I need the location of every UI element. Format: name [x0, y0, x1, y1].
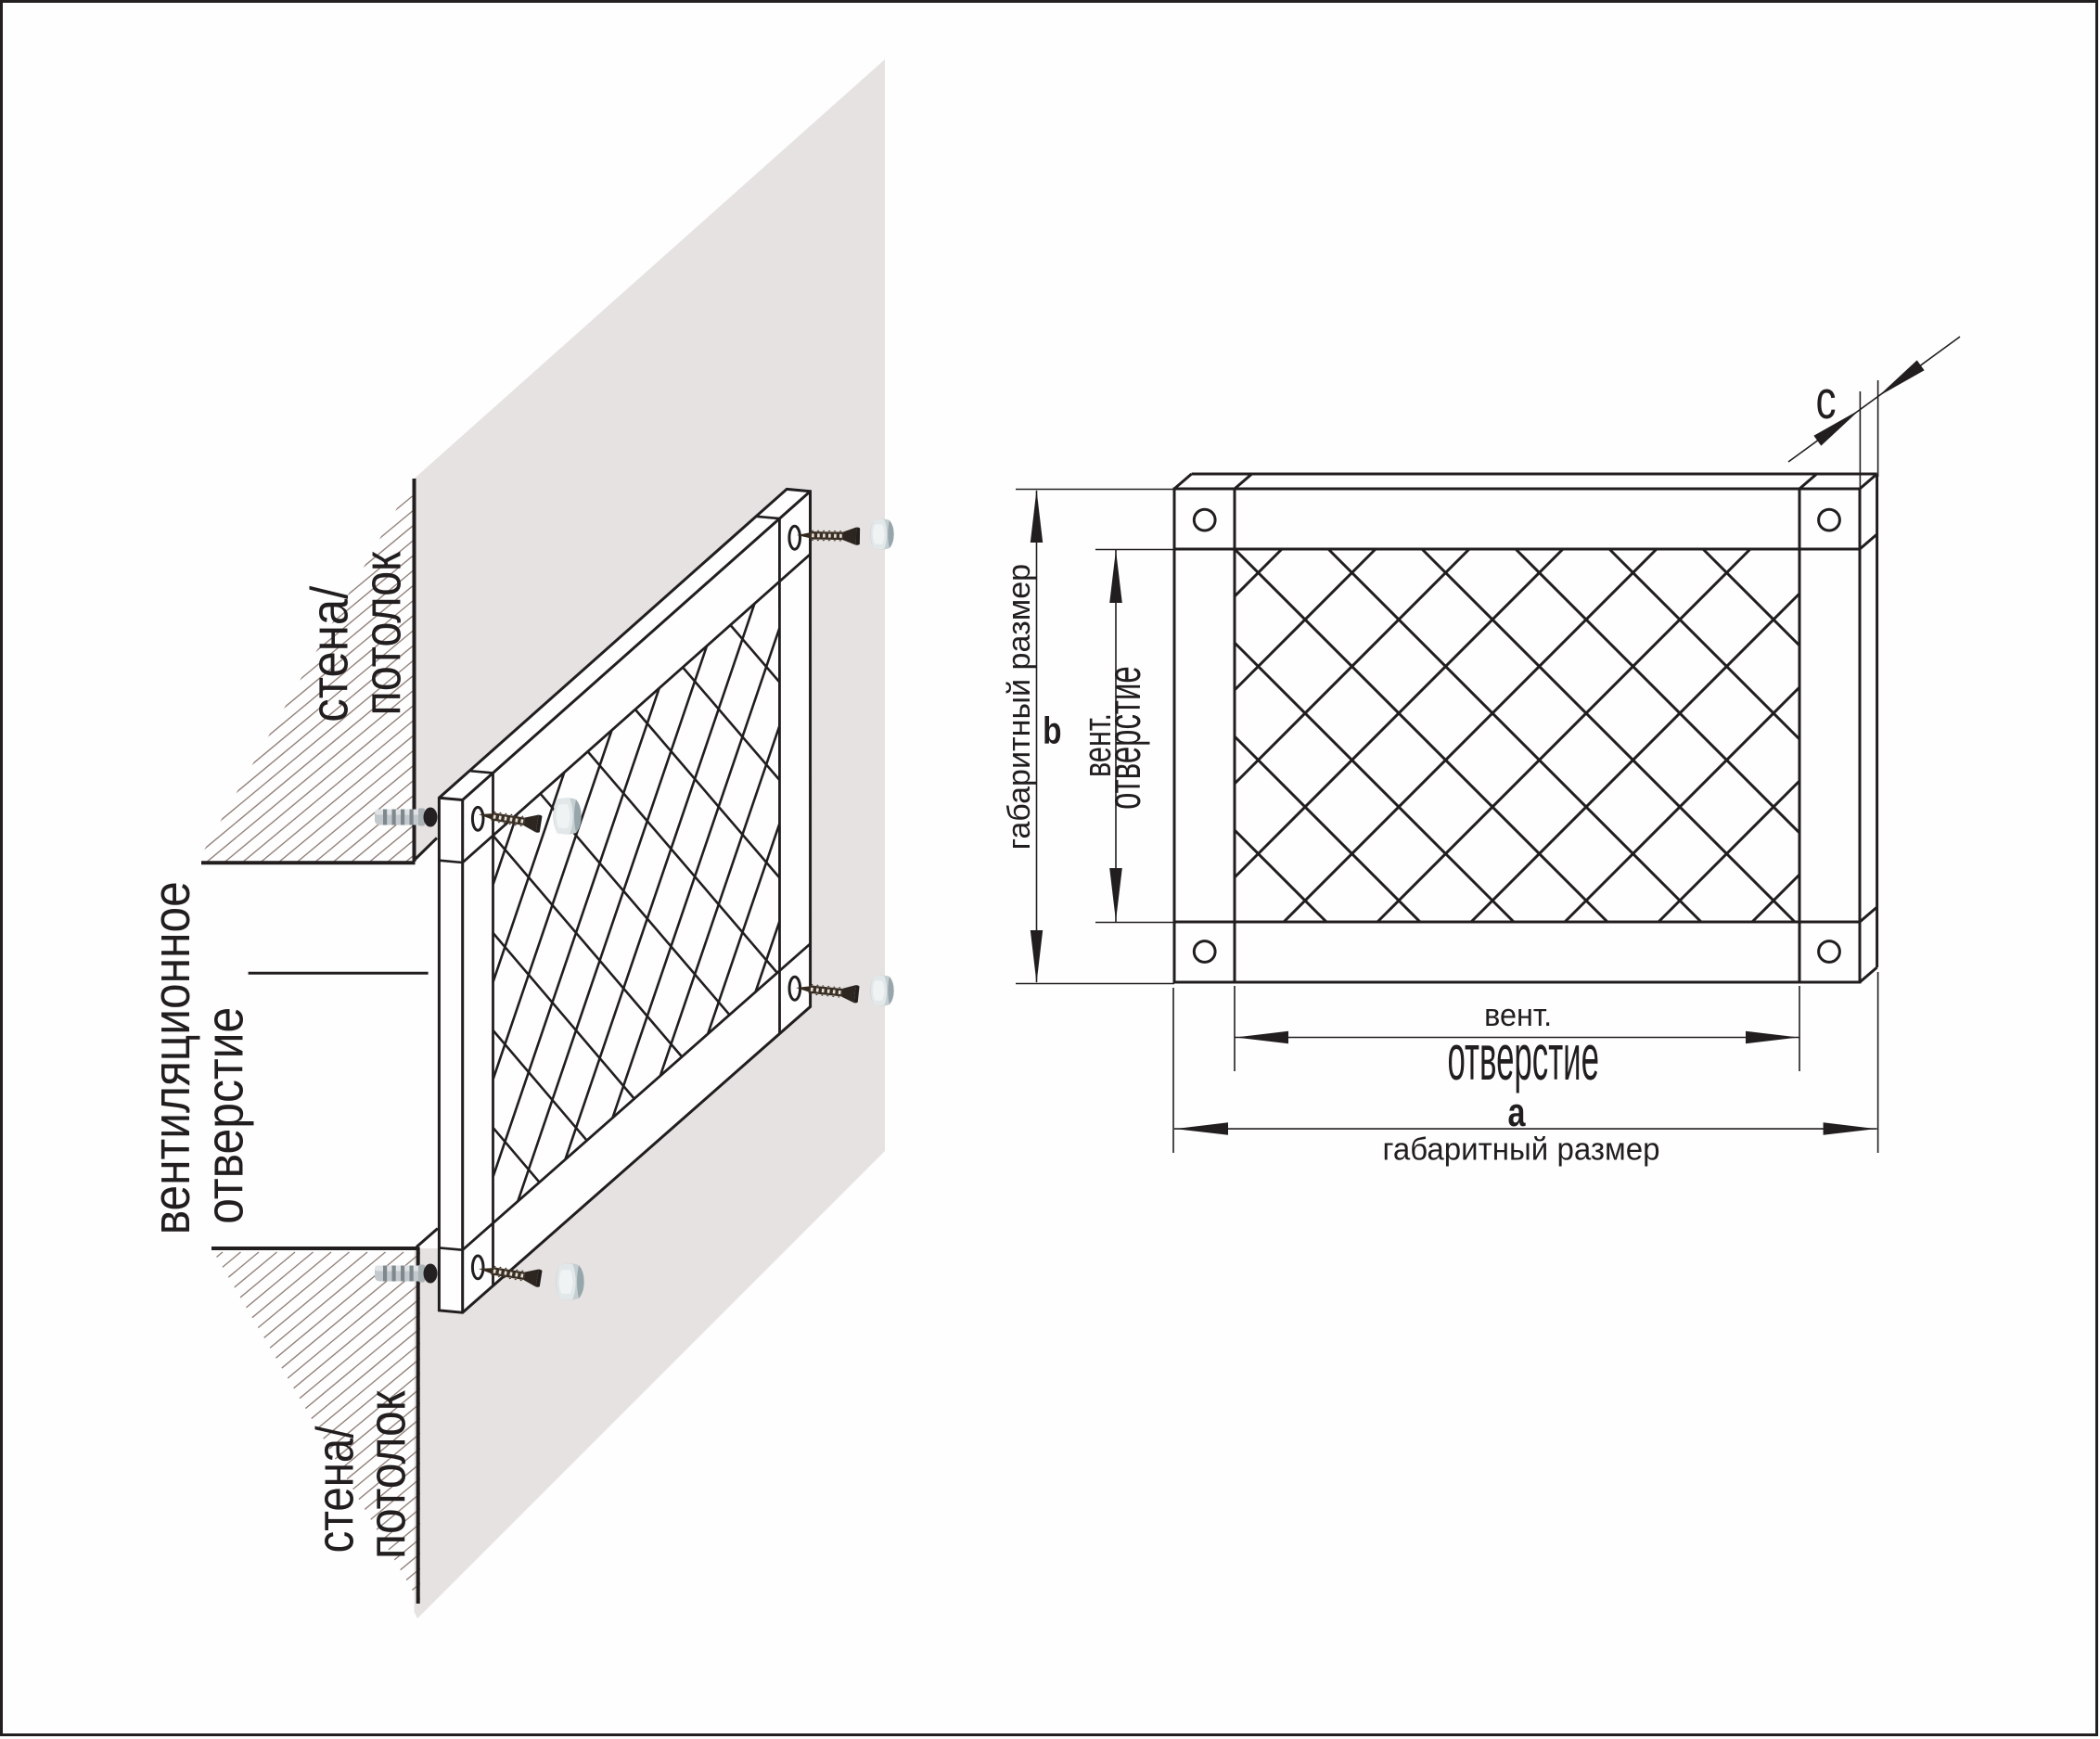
svg-text:потолок: потолок [352, 551, 412, 716]
svg-text:стена/: стена/ [301, 586, 360, 722]
svg-text:c: c [1816, 370, 1837, 430]
svg-text:габаритный размер: габаритный размер [1383, 1132, 1660, 1168]
svg-text:b: b [1043, 710, 1061, 752]
svg-text:вентиляционное: вентиляционное [142, 881, 201, 1234]
svg-text:стена/: стена/ [305, 1426, 365, 1553]
svg-text:a: a [1508, 1090, 1526, 1135]
svg-text:отверстие: отверстие [196, 1007, 255, 1224]
svg-text:отверстие: отверстие [1447, 1021, 1599, 1093]
svg-text:габаритный размер: габаритный размер [1002, 564, 1037, 850]
svg-text:потолок: потолок [357, 1390, 416, 1559]
svg-text:отверстие: отверстие [1098, 666, 1150, 810]
